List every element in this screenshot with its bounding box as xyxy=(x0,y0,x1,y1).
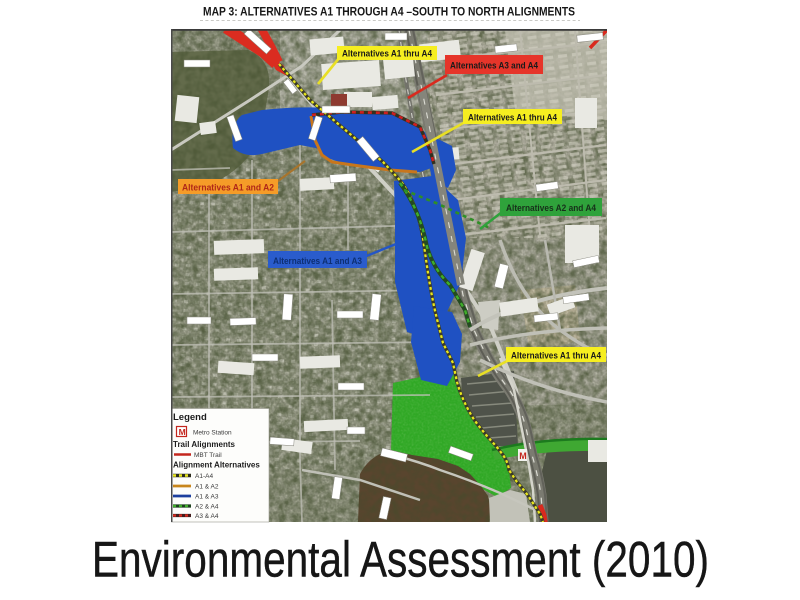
svg-text:A2 & A4: A2 & A4 xyxy=(195,504,219,511)
svg-text:Environmental Assessment (2010: Environmental Assessment (2010) xyxy=(92,532,709,588)
svg-text:MBT Trail: MBT Trail xyxy=(194,452,222,459)
svg-text:A1-A4: A1-A4 xyxy=(195,473,213,480)
svg-text:Alternatives A1 and A2: Alternatives A1 and A2 xyxy=(182,183,274,193)
svg-text:M: M xyxy=(519,451,527,461)
svg-text:A3 & A4: A3 & A4 xyxy=(195,513,219,520)
svg-text:M: M xyxy=(179,427,186,437)
svg-text:A1 & A2: A1 & A2 xyxy=(195,484,219,491)
svg-text:Alignment Alternatives: Alignment Alternatives xyxy=(173,461,260,470)
svg-text:Alternatives A1 and A3: Alternatives A1 and A3 xyxy=(273,256,362,266)
svg-text:MAP 3: ALTERNATIVES A1 THROUGH: MAP 3: ALTERNATIVES A1 THROUGH A4 –SOUTH… xyxy=(203,4,575,18)
svg-text:Legend: Legend xyxy=(173,412,207,423)
svg-text:A1 & A3: A1 & A3 xyxy=(195,494,219,501)
svg-text:Alternatives A2 and A4: Alternatives A2 and A4 xyxy=(506,203,596,213)
svg-text:Alternatives A1 thru A4: Alternatives A1 thru A4 xyxy=(511,351,601,361)
svg-text:Alternatives A3 and A4: Alternatives A3 and A4 xyxy=(450,61,538,71)
svg-text:Trail Alignments: Trail Alignments xyxy=(173,440,235,449)
svg-text:Metro Station: Metro Station xyxy=(193,430,232,437)
svg-text:Alternatives A1 thru A4: Alternatives A1 thru A4 xyxy=(468,113,557,123)
svg-text:Alternatives A1 thru A4: Alternatives A1 thru A4 xyxy=(342,49,432,59)
